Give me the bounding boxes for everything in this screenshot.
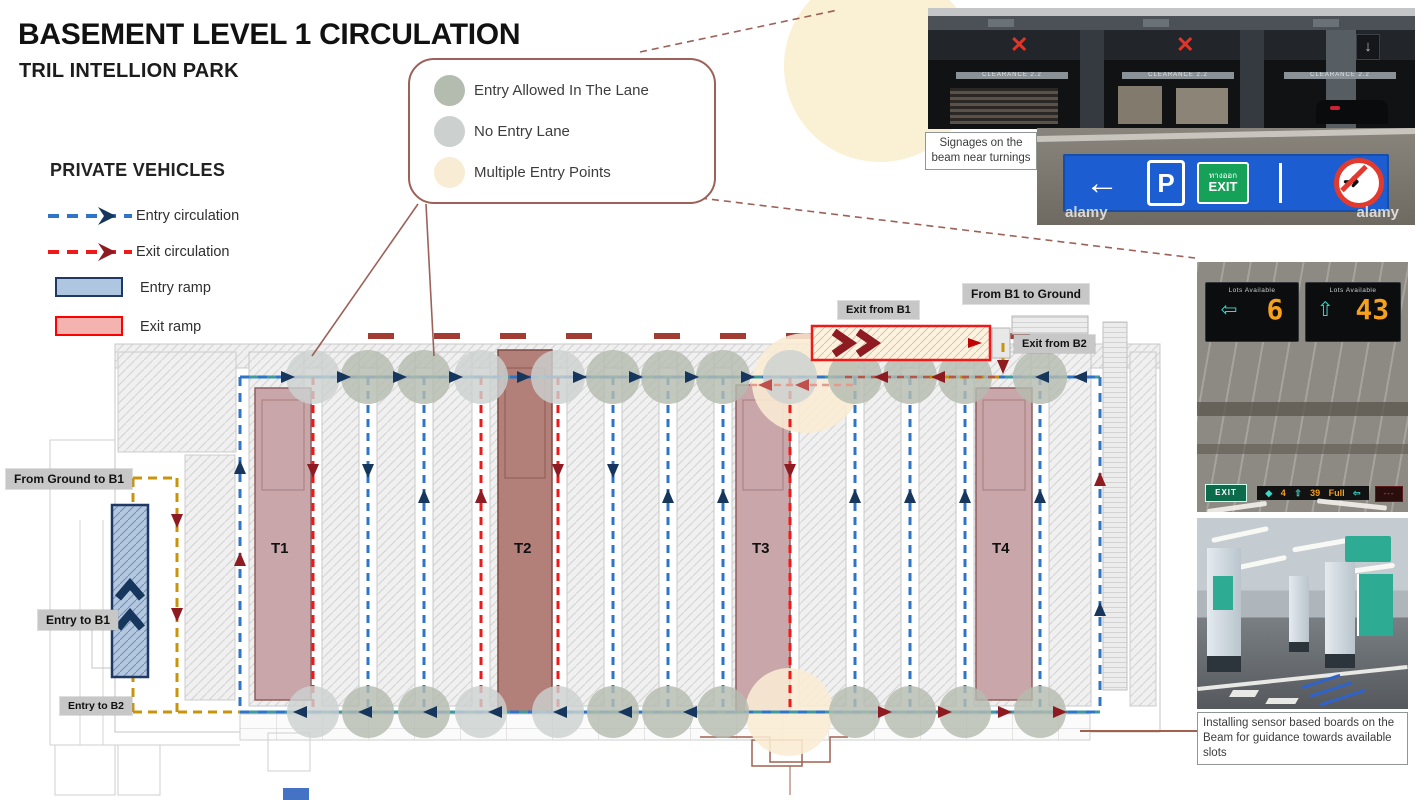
guidance-board	[1357, 574, 1393, 636]
circulation-arrow-icon	[849, 489, 861, 503]
lane-status-circle	[455, 686, 507, 738]
car-silhouette	[1316, 100, 1388, 124]
lane-status-circle	[696, 350, 750, 404]
circulation-arrow-icon	[517, 371, 531, 383]
entry-allowed-label: Entry Allowed In The Lane	[474, 82, 649, 99]
column-sign	[1213, 576, 1233, 610]
circulation-lanes	[313, 377, 1040, 712]
photo-garage-interior	[1197, 518, 1408, 709]
circulation-arrow-icon	[717, 489, 729, 503]
exit-ramp-swatch	[55, 316, 123, 336]
lane-open-arrow-icon: ↓	[1356, 34, 1380, 60]
lots-board-left: Lots Available ⇦ 6	[1205, 282, 1299, 342]
parking-strip	[1049, 352, 1091, 706]
parking-strip	[864, 352, 901, 706]
tower-cores	[255, 350, 1032, 732]
legend-multiple-entry: Multiple Entry Points	[434, 152, 714, 193]
circulation-arrow-icon	[1094, 602, 1106, 616]
lots-count: 6	[1267, 296, 1284, 324]
blue-direction-sign: ← P ทางออก EXIT ➜	[1063, 154, 1389, 212]
circulation-arrow-icon	[1053, 706, 1067, 718]
clearance-bar: CLEARANCE 2.2	[956, 72, 1068, 79]
label-from-ground-to-b1: From Ground to B1	[6, 469, 132, 489]
lots-board-right: Lots Available ⇧ 43	[1305, 282, 1401, 342]
lane-status-circle	[397, 350, 451, 404]
no-entry-dot-icon	[434, 116, 465, 147]
slide-canvas: BASEMENT LEVEL 1 CIRCULATION TRIL INTELL…	[0, 0, 1422, 800]
label-exit-from-b1: Exit from B1	[838, 301, 919, 319]
left-arrow-icon: ←	[1085, 166, 1119, 200]
multiple-entry-circle-top	[752, 333, 860, 433]
circulation-arrow-icon	[171, 608, 183, 622]
lane-status-circle	[1014, 686, 1066, 738]
lane-status-circle	[642, 686, 694, 738]
plan-outline	[115, 344, 1160, 732]
parking-strip	[799, 352, 846, 706]
lane-status-circle	[587, 686, 639, 738]
circulation-arrow-icon	[281, 371, 295, 383]
core-outline-bottom	[700, 737, 848, 762]
no-right-turn-icon: ➜	[1334, 158, 1384, 208]
entry-circulation-label: Entry circulation	[136, 208, 239, 224]
lane-status-circle	[342, 686, 394, 738]
lane-status-circle	[938, 350, 992, 404]
left-arrow-icon: ⇦	[1353, 488, 1361, 499]
caption-beam-signage: Signages on the beam near turnings	[925, 132, 1037, 170]
parking-strip	[322, 352, 359, 706]
lots-count: 43	[1355, 296, 1389, 324]
circulation-arrow-icon	[758, 379, 772, 391]
diamond-icon: ◆	[1265, 488, 1272, 499]
parking-strips	[249, 352, 1091, 706]
lane-status-circle	[532, 686, 584, 738]
hanging-sign	[1345, 536, 1391, 562]
circulation-arrow-icon	[293, 706, 307, 718]
circulation-arrow-icon	[784, 464, 796, 478]
circulation-arrow-icon	[938, 706, 952, 718]
circulation-arrow-icon	[997, 360, 1009, 374]
exit-ramp-label: Exit ramp	[140, 319, 201, 335]
exit-sign: EXIT	[1205, 484, 1247, 502]
beam-marks	[368, 333, 1030, 339]
lane-status-circle	[531, 350, 585, 404]
circulation-arrow-icon	[552, 464, 564, 478]
photo-direction-sign: ← P ทางออก EXIT ➜ alamy alamy	[1037, 128, 1415, 225]
circulation-arrows	[171, 360, 1106, 718]
circulation-arrow-icon	[393, 371, 407, 383]
tower-label-t3: T3	[752, 540, 770, 557]
ramp-paths	[133, 343, 1003, 712]
lane-entry-circles	[286, 350, 1067, 738]
lane-status-circle	[939, 686, 991, 738]
exit-circulation-arrow-icon	[46, 242, 134, 262]
parking-strip	[919, 352, 956, 706]
guidance-led-strip: ◆ 4 ⇧ 39 Full ⇦	[1257, 486, 1369, 500]
photo-beam-signage: ✕ ✕ ↓ CLEARANCE 2.2 CLEARANCE 2.2 CLEARA…	[928, 8, 1415, 129]
up-arrow-icon: ⇧	[1317, 300, 1334, 320]
circulation-arrow-icon	[959, 489, 971, 503]
legend-no-entry: No Entry Lane	[434, 111, 714, 152]
circulation-arrow-icon	[618, 706, 632, 718]
label-exit-from-b2: Exit from B2	[1014, 335, 1095, 353]
lane-status-circle	[286, 350, 340, 404]
tower-label-t2: T2	[514, 540, 532, 557]
circulation-arrow-icon	[307, 464, 319, 478]
label-entry-to-b2: Entry to B2	[60, 697, 132, 715]
circulation-arrow-icon	[1073, 371, 1087, 383]
floor-arrow	[1229, 690, 1259, 697]
column	[1289, 576, 1309, 644]
lane-status-circle	[763, 350, 817, 404]
circulation-arrow-icon	[234, 460, 246, 474]
lane-status-circle	[883, 350, 937, 404]
multiple-entry-dot-icon	[434, 157, 465, 188]
watermark: alamy	[1356, 204, 1399, 221]
parking-strip-top	[115, 344, 1160, 368]
up-arrow-icon: ⇧	[1294, 488, 1302, 499]
exit-ramp	[812, 326, 990, 360]
entry-circulation-loop	[240, 377, 1100, 712]
circulation-arrow-icon	[337, 371, 351, 383]
multiple-entry-circle-bottom	[745, 668, 833, 756]
entry-ramp-swatch	[55, 277, 123, 297]
entry-allowed-dot-icon	[434, 75, 465, 106]
parking-strip	[732, 352, 781, 706]
circulation-arrow-icon	[449, 371, 463, 383]
circulation-arrow-icon	[685, 371, 699, 383]
exit-circulation-label: Exit circulation	[136, 244, 229, 260]
legend-entry-allowed: Entry Allowed In The Lane	[434, 70, 714, 111]
lane-closed-x-icon: ✕	[1010, 32, 1028, 58]
parking-strip	[677, 352, 714, 706]
circulation-arrow-icon	[362, 464, 374, 478]
parking-strip	[377, 352, 415, 706]
parking-strip	[974, 352, 1031, 706]
lane-status-circle	[829, 686, 881, 738]
tower-label-t1: T1	[271, 540, 289, 557]
circulation-arrow-icon	[874, 371, 888, 383]
lane-status-circle	[697, 686, 749, 738]
parking-strip	[622, 352, 659, 706]
multiple-entry-label: Multiple Entry Points	[474, 164, 611, 181]
clearance-bar: CLEARANCE 2.2	[1284, 72, 1396, 79]
parking-strip	[249, 352, 304, 706]
circulation-arrow-icon	[878, 706, 892, 718]
circulation-arrow-icon	[1034, 489, 1046, 503]
label-from-b1-to-ground: From B1 to Ground	[963, 284, 1089, 304]
entry-ramp	[112, 505, 148, 677]
entry-ramp-label: Entry ramp	[140, 280, 211, 296]
circulation-arrow-icon	[931, 371, 945, 383]
lane-status-circle	[884, 686, 936, 738]
watermark: alamy	[1065, 204, 1108, 221]
lane-status-circle	[1013, 350, 1067, 404]
circulation-arrow-icon	[488, 706, 502, 718]
circulation-arrow-icon	[683, 706, 697, 718]
tower-label-t4: T4	[992, 540, 1010, 557]
left-arrow-icon: ⇦	[1221, 300, 1238, 320]
bottom-bay-row	[240, 714, 1090, 740]
circulation-arrow-icon	[741, 371, 755, 383]
circulation-arrow-icon	[475, 489, 487, 503]
lane-status-circle	[454, 350, 508, 404]
parking-p-icon: P	[1147, 160, 1185, 206]
page-subtitle: TRIL INTELLION PARK	[19, 60, 239, 83]
zone-legend-callout: Entry Allowed In The Lane No Entry Lane …	[408, 58, 716, 204]
circulation-arrow-icon	[607, 464, 619, 478]
column	[1325, 562, 1355, 656]
caption-sensor-boards: Installing sensor based boards on the Be…	[1197, 712, 1408, 765]
lane-status-circle	[641, 350, 695, 404]
no-entry-label: No Entry Lane	[474, 123, 570, 140]
lane-status-circle	[398, 686, 450, 738]
b2-ramp-structure	[1012, 316, 1088, 334]
page-title: BASEMENT LEVEL 1 CIRCULATION	[18, 18, 520, 52]
lane-closed-x-icon: ✕	[1176, 32, 1194, 58]
clearance-bar: CLEARANCE 2.2	[1122, 72, 1234, 79]
circulation-arrow-icon	[629, 371, 643, 383]
circulation-arrow-icon	[1035, 371, 1049, 383]
circulation-arrow-icon	[662, 489, 674, 503]
circulation-arrow-icon	[795, 379, 809, 391]
circulation-arrow-icon	[553, 706, 567, 718]
circulation-arrow-icon	[1094, 472, 1106, 486]
circulation-arrow-icon	[573, 371, 587, 383]
lane-status-circle	[586, 350, 640, 404]
lane-status-circle	[287, 686, 339, 738]
circulation-arrow-icon	[358, 706, 372, 718]
stair-block	[283, 788, 309, 800]
circulation-arrow-icon	[423, 706, 437, 718]
circulation-arrow-icon	[998, 706, 1012, 718]
circulation-arrow-icon	[234, 552, 246, 566]
circulation-arrow-icon	[904, 489, 916, 503]
label-entry-to-b1: Entry to B1	[38, 610, 118, 630]
exit-sign: ทางออก EXIT	[1197, 162, 1249, 204]
parking-strip	[433, 352, 472, 706]
photo-lots-available: Lots Available ⇦ 6 Lots Available ⇧ 43 E…	[1197, 262, 1408, 512]
circulation-arrow-icon	[418, 489, 430, 503]
parking-strip	[490, 352, 549, 706]
full-sign: ---	[1375, 486, 1403, 502]
parking-strip	[567, 352, 604, 706]
lane-status-circle	[828, 350, 882, 404]
circulation-arrow-icon	[171, 514, 183, 528]
lane-status-circle	[341, 350, 395, 404]
entry-circulation-arrow-icon	[46, 206, 134, 226]
private-vehicles-heading: PRIVATE VEHICLES	[50, 160, 225, 181]
